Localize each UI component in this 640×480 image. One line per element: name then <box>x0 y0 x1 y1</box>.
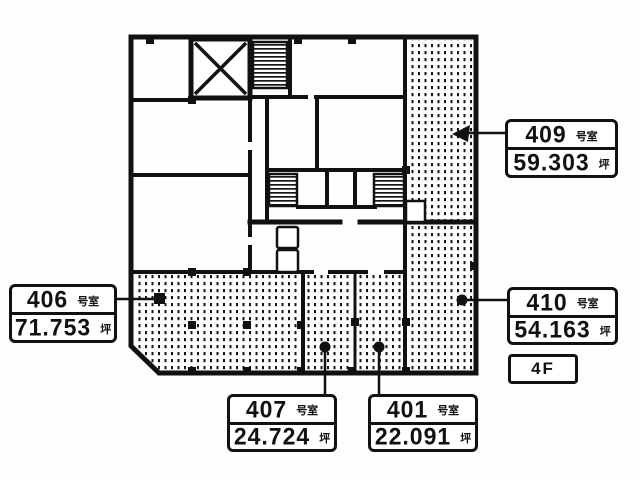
room-area-unit: 坪 <box>599 160 610 171</box>
staircase-icon <box>374 174 404 206</box>
room-area-row: 71.753 坪 <box>12 312 114 340</box>
staircase-icon <box>253 42 287 88</box>
room-area-row: 59.303 坪 <box>508 147 615 175</box>
core-closets <box>277 201 425 272</box>
room-number-suffix: 号室 <box>577 299 599 310</box>
shaft-x-icon <box>191 39 250 98</box>
room-area-unit: 坪 <box>460 434 471 445</box>
room-number-suffix: 号室 <box>296 406 318 417</box>
room-area-unit: 坪 <box>319 434 330 445</box>
room-number: 407 <box>246 397 287 421</box>
room-area-row: 22.091 坪 <box>371 422 475 450</box>
closet-icon <box>277 250 298 272</box>
room-number-row: 406 号室 <box>12 287 114 312</box>
room-area-unit: 坪 <box>600 327 611 338</box>
floorplan-screenshot: 409 号室 59.303 坪 410 号室 54.163 坪 406 号室 7… <box>0 0 640 480</box>
room-area: 24.724 <box>234 425 310 449</box>
room-407-area <box>306 275 353 371</box>
room-label-401: 401 号室 22.091 坪 <box>368 394 478 452</box>
room-number: 410 <box>526 290 567 314</box>
room-number-suffix: 号室 <box>576 132 598 143</box>
floor-label: 4F <box>508 354 578 384</box>
room-number: 409 <box>525 122 566 146</box>
room-number-row: 401 号室 <box>371 397 475 422</box>
closet-icon <box>406 201 425 222</box>
room-number-suffix: 号室 <box>437 406 459 417</box>
room-area-unit: 坪 <box>100 325 111 336</box>
room-number: 401 <box>387 397 428 421</box>
room-area: 54.163 <box>514 318 590 342</box>
leader-410 <box>457 295 508 306</box>
closet-icon <box>277 227 298 248</box>
room-label-406: 406 号室 71.753 坪 <box>9 284 117 343</box>
room-area-row: 54.163 坪 <box>510 315 615 343</box>
room-number-row: 407 号室 <box>230 397 334 422</box>
room-area: 22.091 <box>375 425 451 449</box>
room-number-suffix: 号室 <box>77 297 99 308</box>
room-area: 59.303 <box>513 150 589 174</box>
room-area: 71.753 <box>15 315 91 339</box>
room-label-407: 407 号室 24.724 坪 <box>227 394 337 452</box>
room-label-410: 410 号室 54.163 坪 <box>507 287 618 345</box>
room-number: 406 <box>27 287 68 311</box>
staircase-icon <box>269 174 297 206</box>
room-number-row: 409 号室 <box>508 122 615 147</box>
room-label-409: 409 号室 59.303 坪 <box>505 119 618 178</box>
room-number-row: 410 号室 <box>510 290 615 315</box>
room-401-area <box>358 275 403 371</box>
room-area-row: 24.724 坪 <box>230 422 334 450</box>
room-406-area <box>135 275 301 371</box>
